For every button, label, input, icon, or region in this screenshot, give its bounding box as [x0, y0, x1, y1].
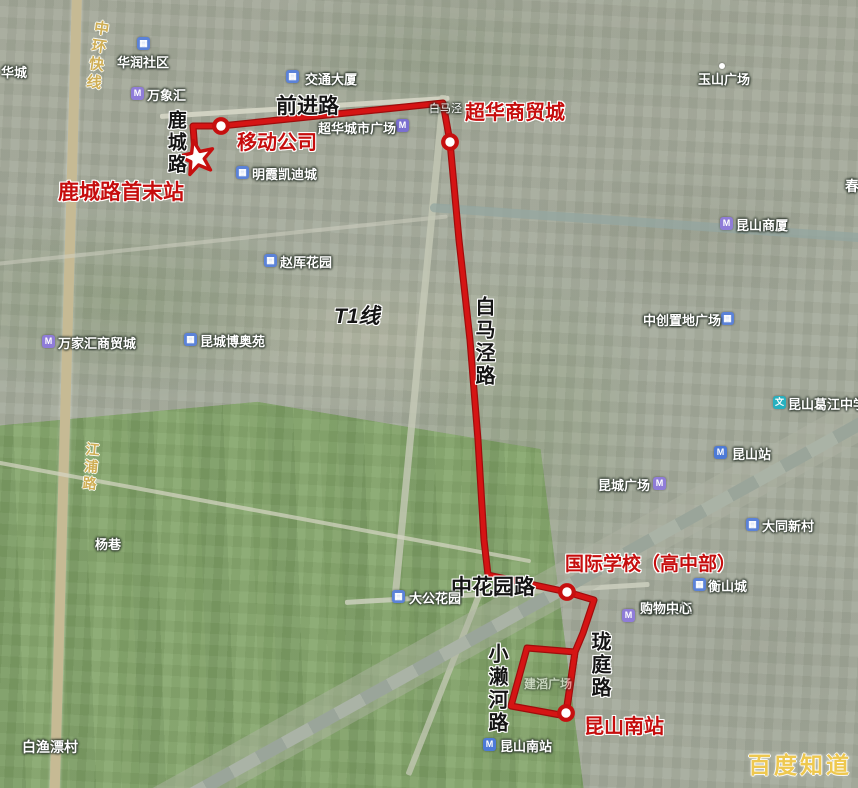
highway-name-label: 江浦路 — [81, 441, 101, 493]
route-stop-name-label: 国际学校（高中部） — [565, 554, 736, 576]
poi-label: 玉山广场 — [698, 73, 750, 88]
watermark-baidu-zhidao: 百度知道 — [748, 746, 852, 780]
building-icon: ▦ — [721, 312, 734, 325]
road-name-label: 珑庭路 — [587, 631, 610, 700]
poi-label: 赵厍花园 — [280, 256, 332, 271]
poi-label: 衡山城 — [708, 580, 747, 595]
place-name-label: 杨巷 — [95, 538, 121, 553]
rail-icon: M — [714, 446, 727, 459]
building-icon: ▦ — [236, 166, 249, 179]
mall-icon: M — [622, 609, 635, 622]
school-icon: 文 — [773, 396, 786, 409]
place-name-label: 华城 — [1, 66, 27, 81]
road-name-label: 中花园路 — [451, 576, 535, 600]
poi-label: 大同新村 — [762, 520, 814, 535]
poi-label: 建滔广场 — [524, 678, 572, 692]
road-name-label: 小濑河路 — [484, 643, 507, 735]
poi-label: 万家汇商贸城 — [58, 337, 136, 352]
road-name-label: 白马泾路 — [471, 296, 494, 388]
poi-label: 昆山南站 — [500, 740, 552, 755]
road-name-label: T1线 — [334, 305, 380, 329]
building-icon: ▦ — [286, 70, 299, 83]
place-name-label: 春 — [845, 178, 858, 194]
dot-icon — [719, 63, 725, 69]
mall-icon: M — [653, 477, 666, 490]
mall-icon: M — [42, 335, 55, 348]
mall-icon: M — [720, 217, 733, 230]
highway-name-label: 中环快线 — [83, 19, 110, 93]
road-name-label: 前进路 — [276, 95, 339, 119]
building-icon: ▦ — [746, 518, 759, 531]
poi-label: 昆城博奥苑 — [200, 335, 265, 350]
satellite-map: 鹿城路首末站移动公司超华商贸城国际学校（高中部）昆山南站前进路中花园路T1线鹿城… — [0, 0, 858, 788]
road-name-small-label: 白马泾 — [429, 103, 462, 116]
place-name-label: 白渔漂村 — [22, 739, 78, 755]
poi-label: 万象汇 — [147, 89, 186, 104]
mall-icon: M — [131, 87, 144, 100]
route-stop-name-label: 移动公司 — [237, 132, 317, 155]
building-icon: ▦ — [392, 590, 405, 603]
poi-label: 华润社区 — [117, 56, 169, 71]
map-labels-layer: 鹿城路首末站移动公司超华商贸城国际学校（高中部）昆山南站前进路中花园路T1线鹿城… — [0, 0, 858, 788]
building-icon: ▦ — [693, 578, 706, 591]
poi-label: 昆山葛江中学 — [788, 398, 858, 413]
building-icon: ▦ — [137, 37, 150, 50]
building-icon: ▦ — [184, 333, 197, 346]
metro-icon: M — [396, 119, 409, 132]
route-stop-name-label: 超华商贸城 — [465, 102, 565, 125]
poi-label: 昆山商厦 — [736, 219, 788, 234]
rail-icon: M — [483, 738, 496, 751]
poi-label: 明霞凯迪城 — [252, 168, 317, 183]
poi-label: 大公花园 — [409, 592, 461, 607]
road-name-label: 鹿城路 — [164, 110, 186, 176]
route-stop-name-label: 鹿城路首末站 — [58, 181, 184, 205]
building-icon: ▦ — [264, 254, 277, 267]
poi-label: 昆城广场 — [598, 479, 650, 494]
route-stop-name-label: 昆山南站 — [584, 716, 664, 739]
poi-label: 昆山站 — [732, 448, 771, 463]
poi-label: 超华城市广场 — [318, 122, 396, 137]
poi-label: 中创置地广场 — [643, 314, 721, 329]
poi-label: 交通大厦 — [305, 73, 357, 88]
